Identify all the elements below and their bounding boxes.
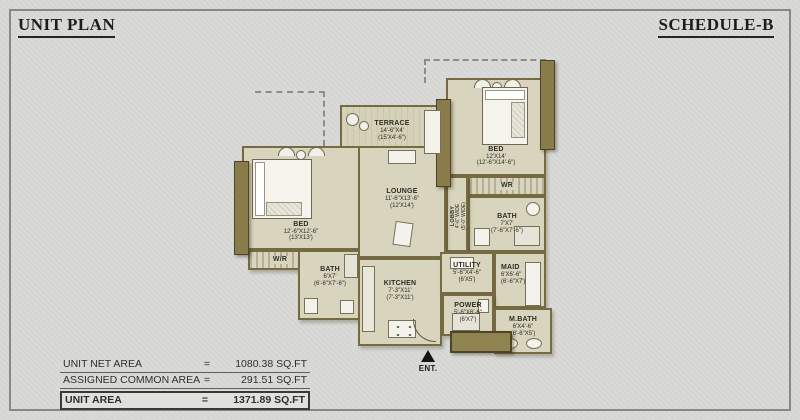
room-label-maid: MAID 6'X6'-6" (6'-6"X7'): [496, 254, 544, 306]
room-name: MAID: [501, 264, 520, 272]
room-bed-left: BED 12'-6"X12'-6" (13'X13'): [242, 146, 360, 250]
stat-value: 1371.89 SQ.FT: [211, 394, 305, 406]
room-name: POWER: [454, 302, 481, 310]
washer-icon: [359, 121, 369, 131]
room-label-bed-right: BED 12'X14' (12'-6"X14'-6"): [448, 80, 544, 174]
room-dim: (6'X7'): [460, 317, 477, 324]
room-bath-left: BATH 6'X7' (6'-6"X7'-6"): [298, 250, 362, 320]
room-utility: UTILITY 5'-6"X4'-6" (6'X5'): [440, 252, 494, 294]
stat-label: UNIT AREA: [65, 394, 199, 406]
entrance-label: ENT.: [410, 364, 446, 373]
stat-equals: =: [201, 358, 213, 370]
room-dim: 7'-3"X11': [388, 288, 411, 295]
room-dim: (7'-3"X11'): [386, 295, 413, 302]
room-name: W/R: [270, 256, 290, 264]
room-power: POWER 5'-6"X6'-6" (6'X7'): [442, 294, 494, 336]
room-name: M.BATH: [509, 316, 537, 324]
stat-equals: =: [199, 394, 211, 406]
room-dim: 5'-6"X4'-6": [453, 270, 481, 277]
stat-value: 1080.38 SQ.FT: [213, 358, 307, 370]
planter: [450, 331, 512, 353]
room-dim: (5'-0" WIDE): [462, 202, 468, 230]
room-dim: 7'X7': [501, 221, 514, 228]
room-dim: 6'X4'-6": [513, 324, 533, 331]
schedule-label: SCHEDULE-B: [658, 15, 774, 38]
room-wardrobe-right: WR: [468, 176, 546, 196]
room-dim: (6'-6"X7'-6"): [314, 281, 346, 288]
room-kitchen: KITCHEN 7'-3"X11' (7'-3"X11'): [358, 258, 442, 346]
room-dim: (15'X4'-6"): [378, 135, 406, 142]
room-dim: (6'-6"X7'): [501, 279, 525, 286]
room-name: TERRACE: [374, 120, 409, 128]
entrance-arrow-icon: [421, 350, 435, 362]
room-label-bed-left: BED 12'-6"X12'-6" (13'X13'): [244, 148, 358, 248]
room-label-utility: UTILITY 5'-6"X4'-6" (6'X5'): [442, 254, 492, 292]
room-label-power: POWER 5'-6"X6'-6" (6'X7'): [444, 296, 492, 334]
room-dim: (12'-6"X14'-6"): [477, 160, 516, 167]
room-name: BATH: [497, 213, 517, 221]
room-dim: 12'X14': [486, 154, 506, 161]
open-area-outline-left: [255, 91, 325, 146]
room-dim: (13'X13'): [289, 235, 313, 242]
floor-plan: TERRACE 14'-6"X4' (15'X4'-6") BED 12'X14…: [228, 55, 564, 375]
room-name: KITCHEN: [384, 280, 417, 288]
stat-row-unit-area: UNIT AREA = 1371.89 SQ.FT: [60, 391, 310, 410]
room-dim: 12'-6"X12'-6": [284, 229, 319, 236]
area-stats: UNIT NET AREA = 1080.38 SQ.FT ASSIGNED C…: [60, 357, 310, 410]
room-bed-right: BED 12'X14' (12'-6"X14'-6"): [446, 78, 546, 176]
room-label-lobby: LOBBY 4'-6" WIDE (5'-0" WIDE): [448, 178, 470, 254]
room-lobby: LOBBY 4'-6" WIDE (5'-0" WIDE): [446, 176, 468, 252]
room-dim: (6'X5'): [459, 277, 476, 284]
wall-slab: [234, 161, 249, 255]
room-name: BED: [488, 146, 503, 154]
stat-row-net-area: UNIT NET AREA = 1080.38 SQ.FT: [60, 357, 310, 373]
room-name: BED: [293, 221, 308, 229]
unit-plan-page: UNIT PLAN SCHEDULE-B TERRACE 14'-6"X4' (…: [0, 0, 800, 420]
room-name: BATH: [320, 266, 340, 274]
room-dim: 6'X6'-6": [501, 272, 521, 279]
stat-equals: =: [201, 374, 213, 386]
room-dim: (6'-6"X5'): [511, 331, 535, 338]
wall-slab: [540, 60, 555, 150]
room-name: LOUNGE: [386, 188, 417, 196]
washer-icon: [346, 113, 359, 126]
room-label-bath-left: BATH 6'X7' (6'-6"X7'-6"): [300, 252, 360, 318]
stat-value: 291.51 SQ.FT: [213, 374, 307, 386]
room-label-kitchen: KITCHEN 7'-3"X11' (7'-3"X11'): [360, 260, 440, 344]
room-label-bath-right: BATH 7'X7' (7'-6"X7'-6"): [470, 198, 544, 250]
room-maid: MAID 6'X6'-6" (6'-6"X7'): [494, 252, 546, 308]
page-title: UNIT PLAN: [18, 15, 115, 38]
door-panel: [424, 110, 441, 154]
room-dim: 5'-6"X6'-6": [454, 310, 482, 317]
room-dim: 6'X7': [324, 274, 337, 281]
room-name: UTILITY: [453, 262, 481, 270]
stat-label: UNIT NET AREA: [63, 358, 201, 370]
room-label-wardrobe-right: WR: [470, 178, 544, 194]
room-dim: (12'X14'): [390, 203, 414, 210]
room-dim: 11'-6"X13'-6": [385, 196, 419, 203]
room-bath-right: BATH 7'X7' (7'-6"X7'-6"): [468, 196, 546, 252]
room-name: WR: [498, 182, 516, 190]
room-dim: (7'-6"X7'-6"): [491, 228, 523, 235]
stat-label: ASSIGNED COMMON AREA: [63, 374, 201, 386]
room-label-lounge: LOUNGE 11'-6"X13'-6" (12'X14'): [360, 148, 444, 256]
room-lounge: LOUNGE 11'-6"X13'-6" (12'X14'): [358, 146, 446, 258]
room-dim: 14'-6"X4': [380, 128, 404, 135]
stat-row-common-area: ASSIGNED COMMON AREA = 291.51 SQ.FT: [60, 373, 310, 389]
